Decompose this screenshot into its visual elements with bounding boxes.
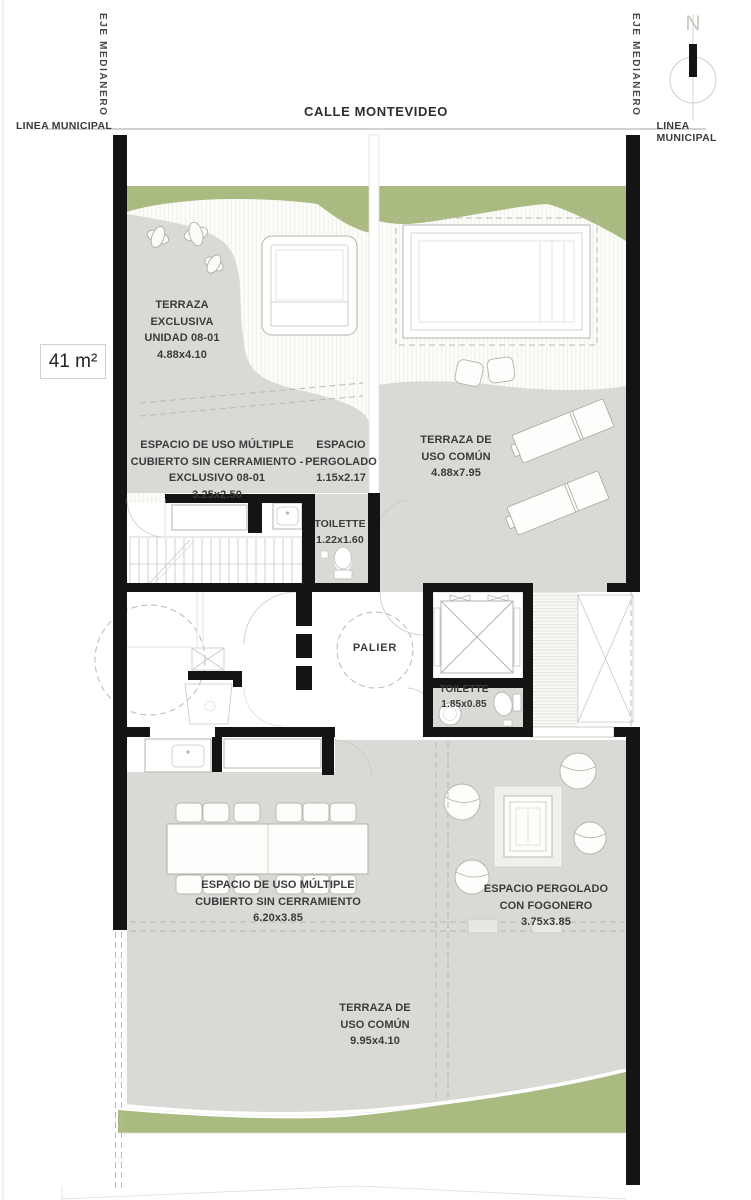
label-uso-multiple-exclusivo: ESPACIO DE USO MÚLTIPLE CUBIERTO SIN CER… <box>131 437 304 503</box>
street-edge-lines <box>62 1186 626 1200</box>
party-axis-label-right: EJE MEDIANERO <box>630 13 641 117</box>
label-palier: PALIER <box>353 640 397 657</box>
lot-line-dashed <box>116 932 122 1192</box>
label-pergolado-upper: ESPACIO PERGOLADO 1.15x2.17 <box>305 437 377 487</box>
label-pergolado-fogonero: ESPACIO PERGOLADO CON FOGONERO 3.75x3.85 <box>484 881 608 931</box>
label-toilette-upper: TOILETTE 1.22x1.60 <box>314 517 365 548</box>
municipal-line-label-left: LINEA MUNICIPAL <box>16 120 112 132</box>
label-terraza-comun-upper: TERRAZA DE USO COMÚN 4.88x7.95 <box>420 432 491 482</box>
label-toilette-lower: TOILETTE 1.85x0.85 <box>440 683 489 712</box>
municipal-line-label-right: LINEA MUNICIPAL <box>657 120 720 144</box>
area-badge: 41 m² <box>40 344 106 379</box>
bench-planter <box>530 727 614 737</box>
party-axis-label-left: EJE MEDIANERO <box>97 13 108 117</box>
label-terraza-comun-lower: TERRAZA DE USO COMÚN 9.95x4.10 <box>339 1000 410 1050</box>
pool <box>396 218 597 345</box>
label-uso-multiple-comun: ESPACIO DE USO MÚLTIPLE CUBIERTO SIN CER… <box>195 877 361 927</box>
street-name: CALLE MONTEVIDEO <box>304 104 448 119</box>
label-terraza-exclusiva: TERRAZA EXCLUSIVA UNIDAD 08-01 4.88x4.10 <box>144 297 219 363</box>
counter-upper <box>172 503 302 530</box>
skylight <box>262 236 357 335</box>
north-letter: N <box>685 12 700 36</box>
floor-plan: CALLE MONTEVIDEO LINEA MUNICIPAL LINEA M… <box>0 0 751 1200</box>
